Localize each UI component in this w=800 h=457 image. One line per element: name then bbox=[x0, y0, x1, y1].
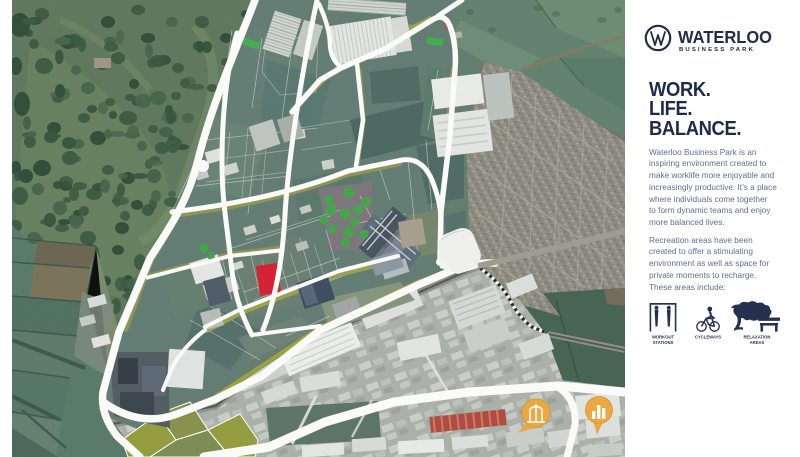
svg-text:WATERLOO: WATERLOO bbox=[678, 27, 772, 47]
svg-text:AREAS: AREAS bbox=[750, 340, 765, 345]
svg-text:WORKOUT: WORKOUT bbox=[652, 335, 675, 340]
svg-text:STATIONS: STATIONS bbox=[653, 340, 674, 345]
svg-text:CYCLEWAYS: CYCLEWAYS bbox=[695, 335, 721, 340]
svg-text:BUSINESS PARK: BUSINESS PARK bbox=[679, 47, 755, 53]
svg-text:RELAXATION: RELAXATION bbox=[744, 335, 771, 340]
